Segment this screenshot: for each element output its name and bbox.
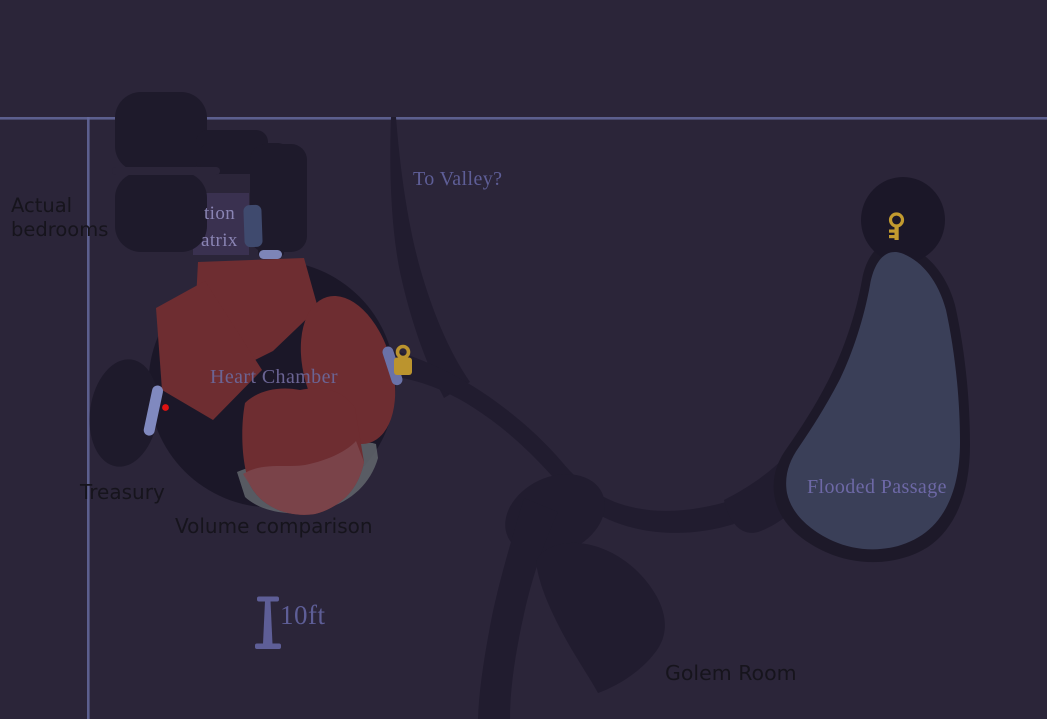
map-canvas [0,0,1047,719]
door-marker-bedrooms [243,205,262,248]
vertical-ruled-line [87,117,90,719]
door-marker-heart-north [259,250,282,259]
red-dot-marker [162,404,169,411]
dungeon-map: Actual bedrooms tion atrix To Valley? He… [0,0,1047,719]
bedrooms-slit [112,167,220,175]
